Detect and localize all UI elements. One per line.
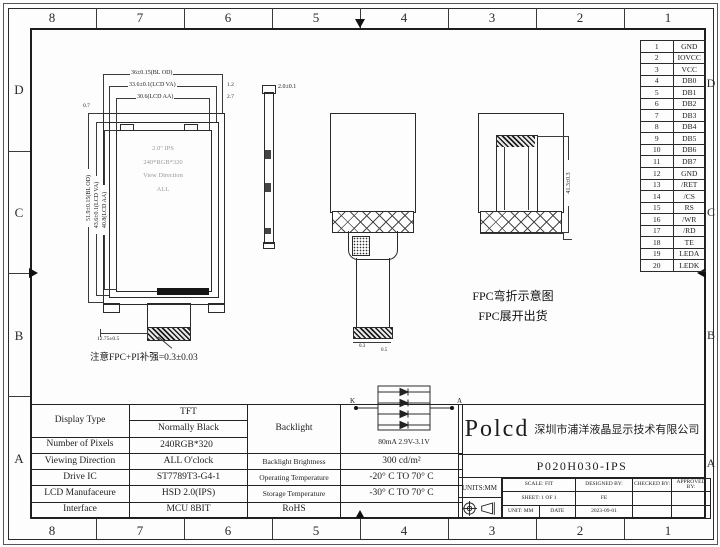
spec-rohs-value — [341, 502, 463, 518]
unfolded-view-hatch — [332, 211, 414, 233]
datum-target-icon — [462, 501, 477, 516]
projection-symbols — [458, 498, 502, 519]
pin-number: 10 — [641, 144, 674, 156]
grid-col-label: 3 — [448, 10, 536, 26]
spec-iface: MCU 8BIT — [130, 502, 248, 518]
ruler-tick — [536, 519, 537, 539]
grid-row-label: C — [8, 205, 30, 221]
dim-top-margin: 0.7 — [82, 104, 91, 110]
folded-view-hatch — [480, 211, 562, 233]
grid-row-label: D — [8, 82, 30, 98]
sheet-label: SHEET: 1 OF 1 — [503, 492, 576, 505]
fpc-ship-caption: FPC展开出货 — [448, 307, 578, 324]
pin-number: 13 — [641, 179, 674, 191]
dim-aa-height: 40.8(LCD AA) — [102, 185, 108, 235]
dim-fpc-width: 12.75±0.5 — [96, 337, 120, 343]
projection-angle-icon — [479, 502, 497, 515]
spec-iface-label: Interface — [31, 502, 130, 518]
grid-row-label: A — [704, 456, 718, 471]
ext-line — [216, 86, 217, 122]
ext-line — [96, 122, 109, 123]
dim-va-height: 43.6±0.1(LCD VA) — [94, 176, 100, 234]
grid-col-label: 6 — [184, 10, 272, 26]
pin-name: /WR — [673, 214, 706, 226]
pin-name: GND — [673, 41, 706, 53]
ext-line — [147, 329, 148, 338]
pin-name: DB2 — [673, 98, 706, 110]
title-block-header: Polcd 深圳市浦洋液晶显示技术有限公司 — [458, 404, 706, 455]
spec-st-temp-label: Storage Temperature — [248, 486, 341, 502]
ext-line — [209, 98, 210, 130]
folded-view-step — [563, 239, 572, 240]
fpc-stiffener-note: 注意FPC+PI补强=0.3±0.03 — [90, 349, 198, 363]
designed-by-value: FE — [576, 492, 633, 505]
pin-number: 3 — [641, 64, 674, 76]
spec-mfr-label: LCD Manufaceure — [31, 486, 130, 502]
grid-row-label: C — [704, 205, 718, 220]
unfolded-fpc-component — [352, 236, 370, 256]
pin-number: 14 — [641, 191, 674, 203]
dim-folded-height: 41.3±0.3 — [566, 160, 572, 206]
grid-col-label: 3 — [448, 523, 536, 539]
pin-number: 9 — [641, 133, 674, 145]
ext-line — [537, 136, 568, 137]
title-info-table: SCALE: FIT DESIGNED BY: CHECKED BY: APPR… — [502, 478, 711, 519]
grid-row-label: B — [8, 328, 30, 344]
folded-fpc-edge — [504, 147, 505, 210]
dim-va-margin: 1.2 — [226, 83, 235, 89]
ruler-tick — [536, 8, 537, 28]
dim-line — [100, 333, 147, 334]
pin-name: DB3 — [673, 110, 706, 122]
dim-outline-height: 51.9±0.15(BL OD) — [86, 169, 92, 227]
ext-line — [544, 232, 568, 233]
spec-table: Display Type TFT Backlight Normally Blac… — [30, 404, 463, 519]
approved-by-value — [672, 492, 711, 505]
spec-ic: ST7789T3-G4-1 — [130, 470, 248, 486]
pin-name: RS — [673, 202, 706, 214]
pin-name: LEDA — [673, 248, 706, 260]
dim-aa-margin: 2.7 — [226, 95, 235, 101]
side-view-detail — [265, 183, 271, 192]
spec-display-type-1: TFT — [130, 405, 248, 421]
spec-pixels-label: Number of Pixels — [31, 437, 130, 453]
checked-date — [633, 505, 672, 518]
unfolded-fpc-tail — [356, 258, 390, 329]
grid-row-label: D — [704, 76, 718, 91]
ruler-tick — [624, 8, 625, 28]
pin-name: DB4 — [673, 121, 706, 133]
grid-col-label: 1 — [624, 10, 712, 26]
ruler-tick — [624, 519, 625, 539]
pin-table: 1GND 2IOVCC 3VCC 4DB0 5DB1 6DB2 7DB3 8DB… — [640, 40, 706, 272]
scale-label: SCALE: FIT — [503, 479, 576, 492]
designed-by-label: DESIGNED BY: — [576, 479, 633, 492]
grid-col-label: 8 — [8, 10, 96, 26]
pin-name: DB7 — [673, 156, 706, 168]
unit-label: UNIT: MM — [503, 505, 540, 518]
pin-name: DB5 — [673, 133, 706, 145]
ext-line — [116, 98, 117, 130]
spec-mfr: HSD 2.0(IPS) — [130, 486, 248, 502]
spec-op-temp-label: Operating Temperature — [248, 470, 341, 486]
part-number: P020H030-IPS — [458, 455, 706, 478]
pin-number: 17 — [641, 225, 674, 237]
spec-backlight-diagram-cell — [341, 405, 463, 454]
approved-by-label: APPROVED BY: — [672, 479, 711, 492]
spec-viewing-label: Viewing Direction — [31, 453, 130, 469]
pin-number: 15 — [641, 202, 674, 214]
ruler-tick — [96, 8, 97, 28]
grid-row-label: A — [8, 451, 30, 467]
pin-name: IOVCC — [673, 52, 706, 64]
ext-line — [109, 86, 110, 122]
spec-display-type-2: Normally Black — [130, 421, 248, 437]
grid-col-label: 2 — [536, 10, 624, 26]
pin-number: 1 — [641, 41, 674, 53]
pin-number: 6 — [641, 98, 674, 110]
units-label: UNITS:MM — [458, 478, 502, 498]
pin-name: /RD — [673, 225, 706, 237]
pin-name: VCC — [673, 64, 706, 76]
spec-display-type-label: Display Type — [31, 405, 130, 438]
pin-number: 5 — [641, 87, 674, 99]
front-view-foot — [103, 303, 120, 313]
ruler-tick — [448, 519, 449, 539]
panel-viewdir-value: ALL — [121, 183, 205, 197]
ext-line — [104, 130, 116, 131]
grid-col-label: 5 — [272, 523, 360, 539]
front-view-foot — [208, 303, 225, 313]
drawing-sheet: 8 7 6 5 4 3 2 1 8 7 6 5 4 3 2 1 D C B A … — [0, 0, 720, 547]
company-name: 深圳市浦洋液晶显示技术有限公司 — [534, 421, 699, 437]
panel-size-text: 2.0" IPS — [121, 142, 205, 156]
dim-connector-a: 0.3 — [358, 344, 366, 349]
side-view-detail — [265, 228, 271, 234]
grid-col-label: 7 — [96, 523, 184, 539]
ext-line — [222, 74, 223, 113]
pin-name: DB0 — [673, 75, 706, 87]
spec-brightness-label: Backlight Brightness — [248, 453, 341, 469]
spec-pixels: 240RGB*320 — [128, 437, 245, 453]
dim-connector-b: 0.5 — [380, 348, 388, 353]
spec-rohs-label: RoHS — [248, 502, 341, 518]
folded-fpc-stiffener — [497, 136, 535, 147]
spec-viewing: ALL O'clock — [130, 453, 248, 469]
center-arrow-icon — [355, 19, 365, 28]
pin-number: 2 — [641, 52, 674, 64]
date-label: DATE — [539, 505, 576, 518]
pin-number: 18 — [641, 237, 674, 249]
company-logo: Polcd — [465, 416, 530, 443]
dim-outline-width: 36±0.15(BL OD) — [130, 70, 173, 76]
ruler-tick — [8, 396, 30, 397]
grid-col-label: 1 — [624, 523, 712, 539]
front-view-bonding-bar — [157, 288, 209, 295]
dim-va-width: 33.6±0.1(LCD VA) — [128, 82, 177, 88]
ruler-tick — [272, 8, 273, 28]
approved-date — [672, 505, 711, 518]
date-value: 2023-09-01 — [576, 505, 633, 518]
grid-col-label: 7 — [96, 10, 184, 26]
side-view-foot — [263, 242, 275, 249]
spec-st-temp: -30° C TO 70° C — [341, 486, 463, 502]
ruler-tick — [448, 8, 449, 28]
front-view-panel-text: 2.0" IPS 240*RGB*320 View Direction ALL — [121, 142, 205, 197]
ruler-tick — [8, 273, 30, 274]
pin-number: 20 — [641, 260, 674, 272]
front-view-notch — [120, 124, 134, 131]
side-view-profile — [264, 92, 274, 244]
pin-name: /RET — [673, 179, 706, 191]
ruler-tick — [96, 519, 97, 539]
ext-line — [104, 289, 116, 290]
pin-name: LEDK — [673, 260, 706, 272]
spec-ic-label: Drive IC — [31, 470, 130, 486]
dim-thickness: 2.0±0.1 — [277, 84, 297, 90]
checked-by-label: CHECKED BY: — [633, 479, 672, 492]
front-view-fpc-connector — [147, 327, 191, 341]
checked-by-value — [633, 492, 672, 505]
grid-row-label: B — [704, 328, 718, 343]
dim-line — [353, 342, 391, 343]
pin-name: DB6 — [673, 144, 706, 156]
grid-col-label: 8 — [8, 523, 96, 539]
grid-col-label: 6 — [184, 523, 272, 539]
front-view-fpc-tail — [147, 303, 191, 330]
ext-line — [103, 74, 104, 113]
dim-aa-width: 30.6(LCD AA) — [136, 94, 174, 100]
folded-view-ledge — [480, 233, 564, 234]
pin-number: 4 — [641, 75, 674, 87]
fpc-fold-caption: FPC弯折示意图 — [448, 287, 578, 304]
spec-backlight-label: Backlight — [248, 405, 341, 454]
pin-number: 8 — [641, 121, 674, 133]
pin-number: 11 — [641, 156, 674, 168]
side-view-detail — [265, 150, 271, 159]
ext-line — [88, 302, 103, 303]
panel-resolution-text: 240*RGB*320 — [121, 156, 205, 170]
front-view-notch — [184, 124, 198, 131]
pin-name: DB1 — [673, 87, 706, 99]
ruler-tick — [272, 519, 273, 539]
grid-col-label: 5 — [272, 10, 360, 26]
pin-name: GND — [673, 168, 706, 180]
pin-number: 16 — [641, 214, 674, 226]
ext-line — [88, 113, 103, 114]
pin-number: 12 — [641, 168, 674, 180]
spec-op-temp: -20° C TO 70° C — [341, 470, 463, 486]
panel-viewdir-text: View Direction — [121, 169, 205, 183]
pin-number: 19 — [641, 248, 674, 260]
center-arrow-icon — [29, 268, 38, 278]
folded-fpc-edge — [528, 147, 529, 210]
spec-brightness: 300 cd/m² — [341, 453, 463, 469]
ruler-tick — [184, 519, 185, 539]
grid-col-label: 2 — [536, 523, 624, 539]
unfolded-fpc-connector — [353, 327, 393, 339]
unfolded-view-outline — [330, 113, 416, 213]
pin-name: /CS — [673, 191, 706, 203]
ext-line — [96, 295, 109, 296]
grid-col-label: 4 — [360, 10, 448, 26]
pin-name: TE — [673, 237, 706, 249]
ruler-tick — [360, 519, 361, 539]
ruler-tick — [8, 151, 30, 152]
pin-number: 7 — [641, 110, 674, 122]
ruler-tick — [184, 8, 185, 28]
grid-col-label: 4 — [360, 523, 448, 539]
